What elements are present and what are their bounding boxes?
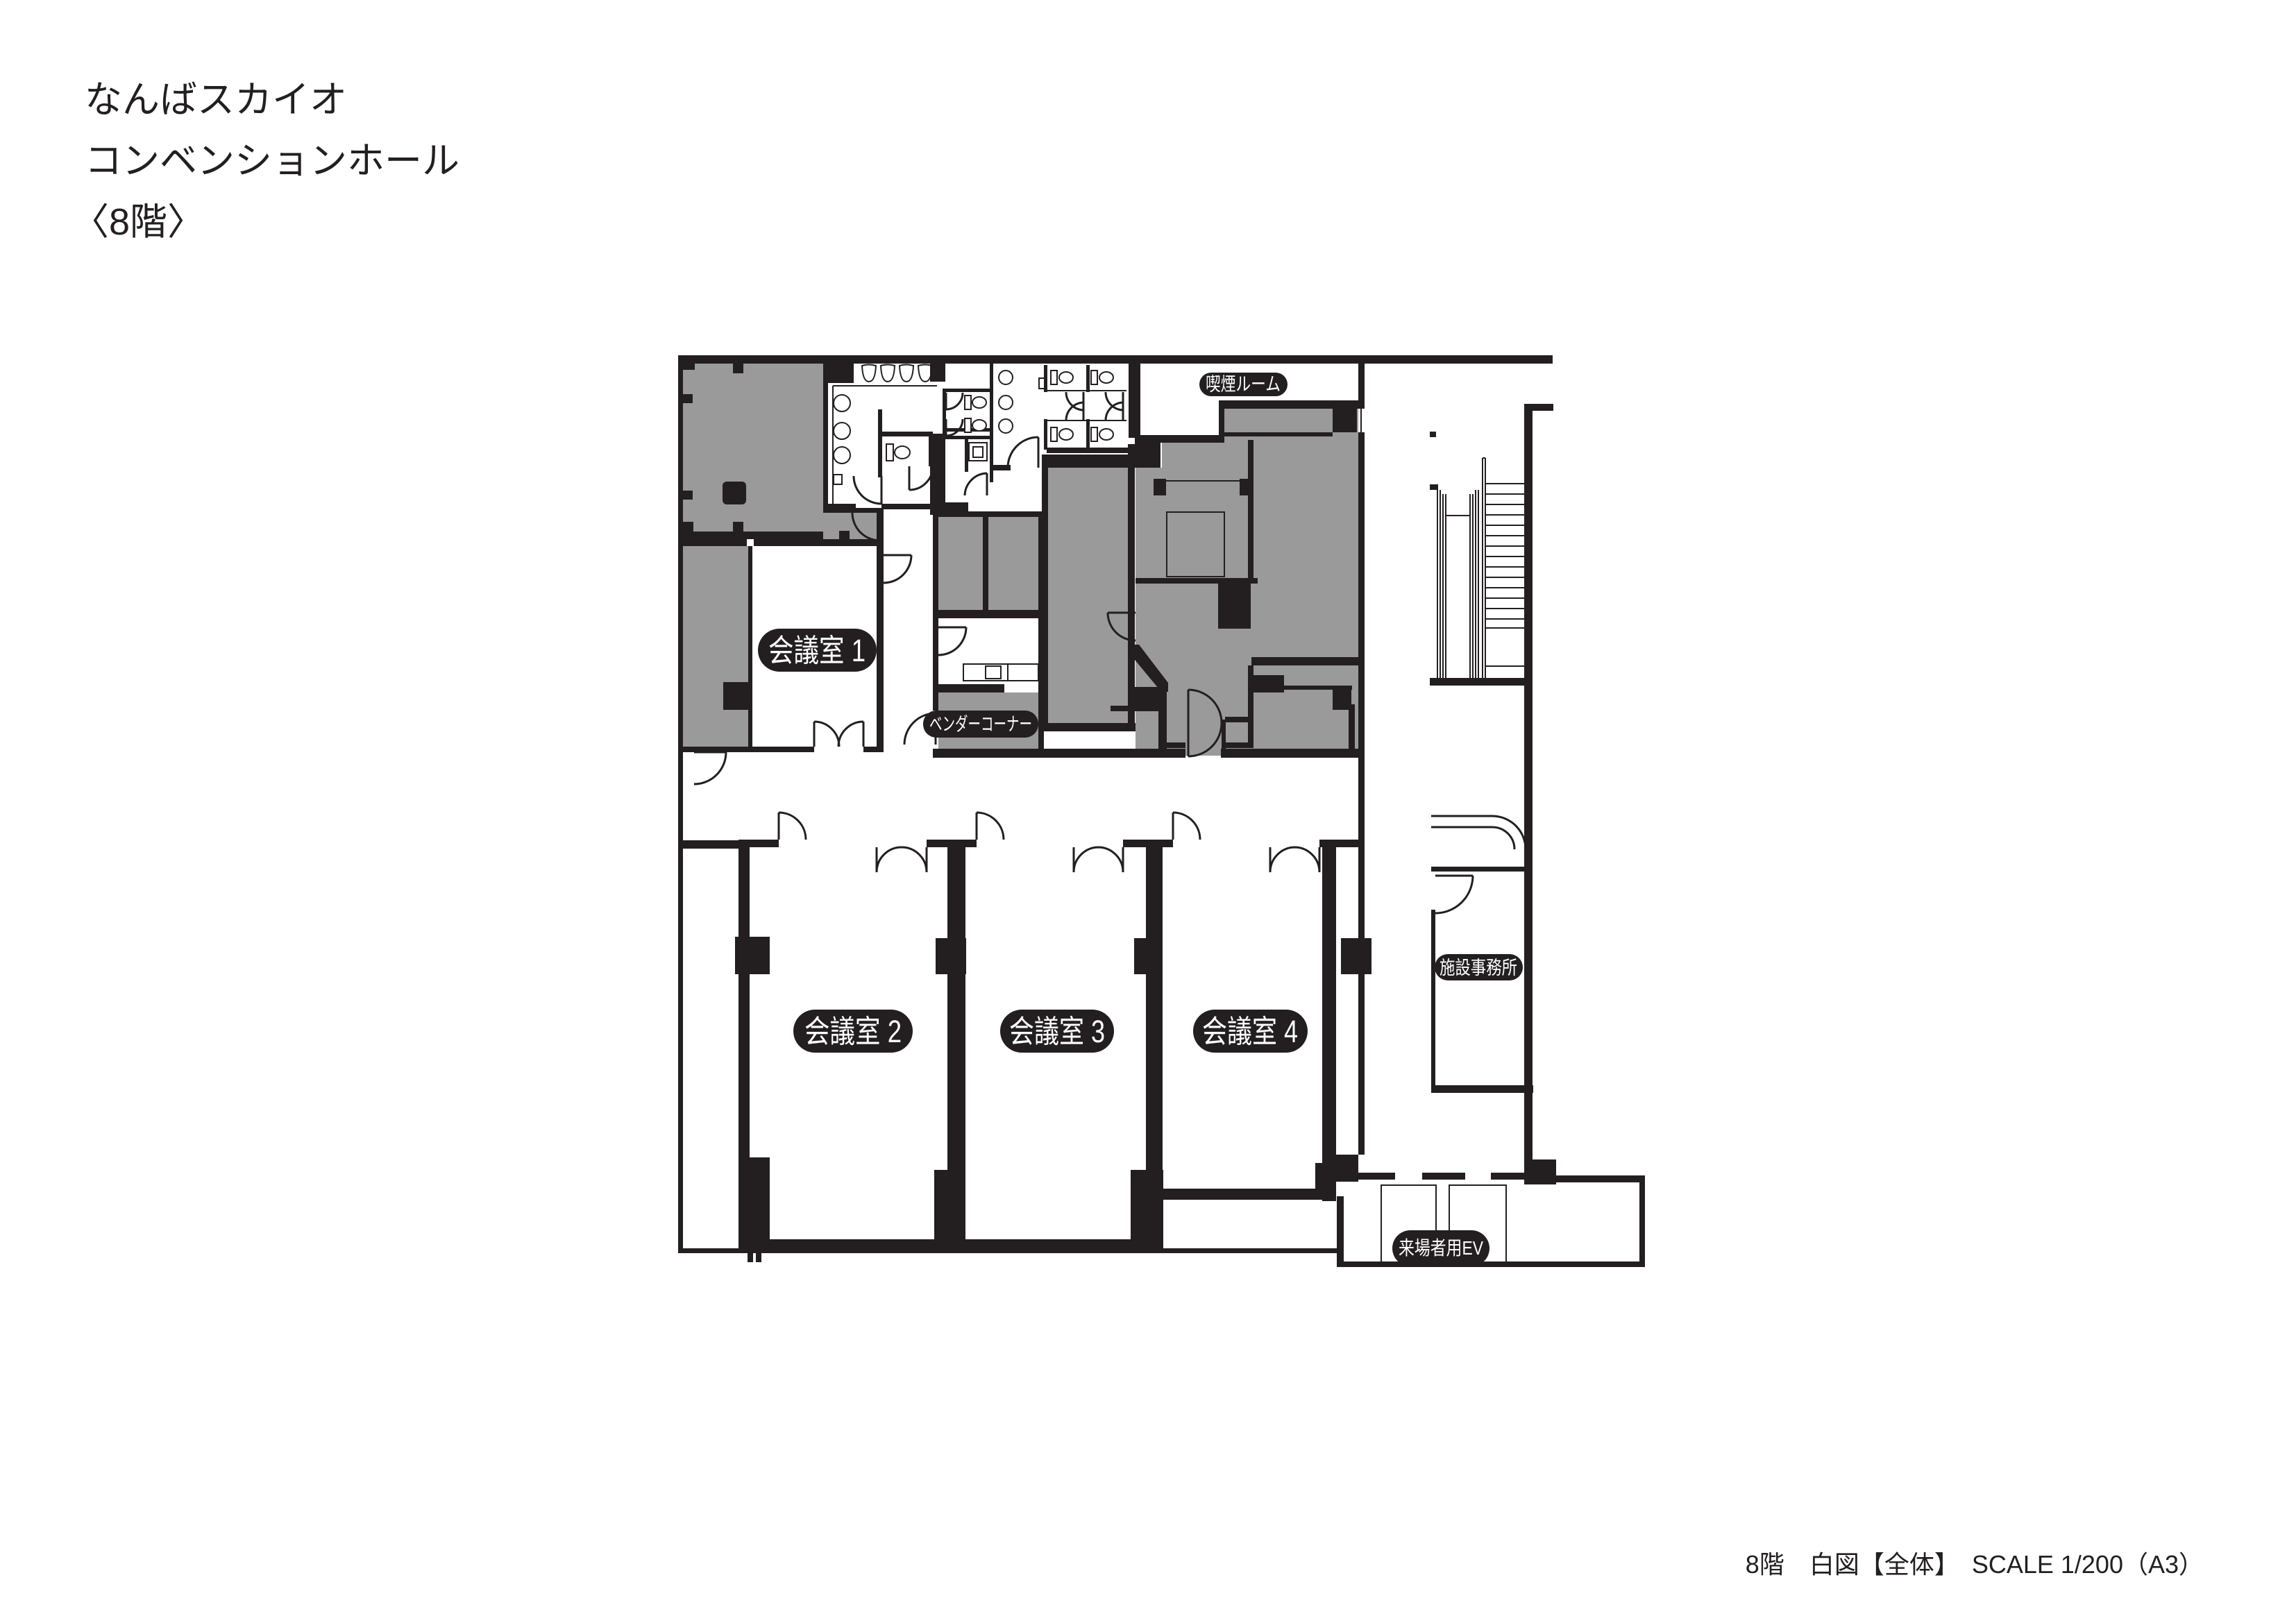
svg-text:なんばスカイオ: なんばスカイオ [85,79,347,121]
svg-text:会議室 3: 会議室 3 [1009,1014,1105,1049]
svg-text:会議室 1: 会議室 1 [768,633,866,668]
svg-text:喫煙ルーム: 喫煙ルーム [1206,374,1281,395]
svg-text:コンベンションホール: コンベンションホール [85,140,459,182]
svg-text:8階 白図【全体】 SCALE 1/200（A3）: 8階 白図【全体】 SCALE 1/200（A3） [1746,1550,2204,1579]
svg-text:来場者用EV: 来場者用EV [1399,1237,1483,1259]
svg-text:〈8階〉: 〈8階〉 [71,201,205,243]
svg-text:会議室 4: 会議室 4 [1202,1014,1298,1049]
svg-text:会議室 2: 会議室 2 [804,1014,902,1049]
svg-text:施設事務所: 施設事務所 [1440,958,1517,978]
svg-text:ベンダーコーナー: ベンダーコーナー [929,714,1032,735]
